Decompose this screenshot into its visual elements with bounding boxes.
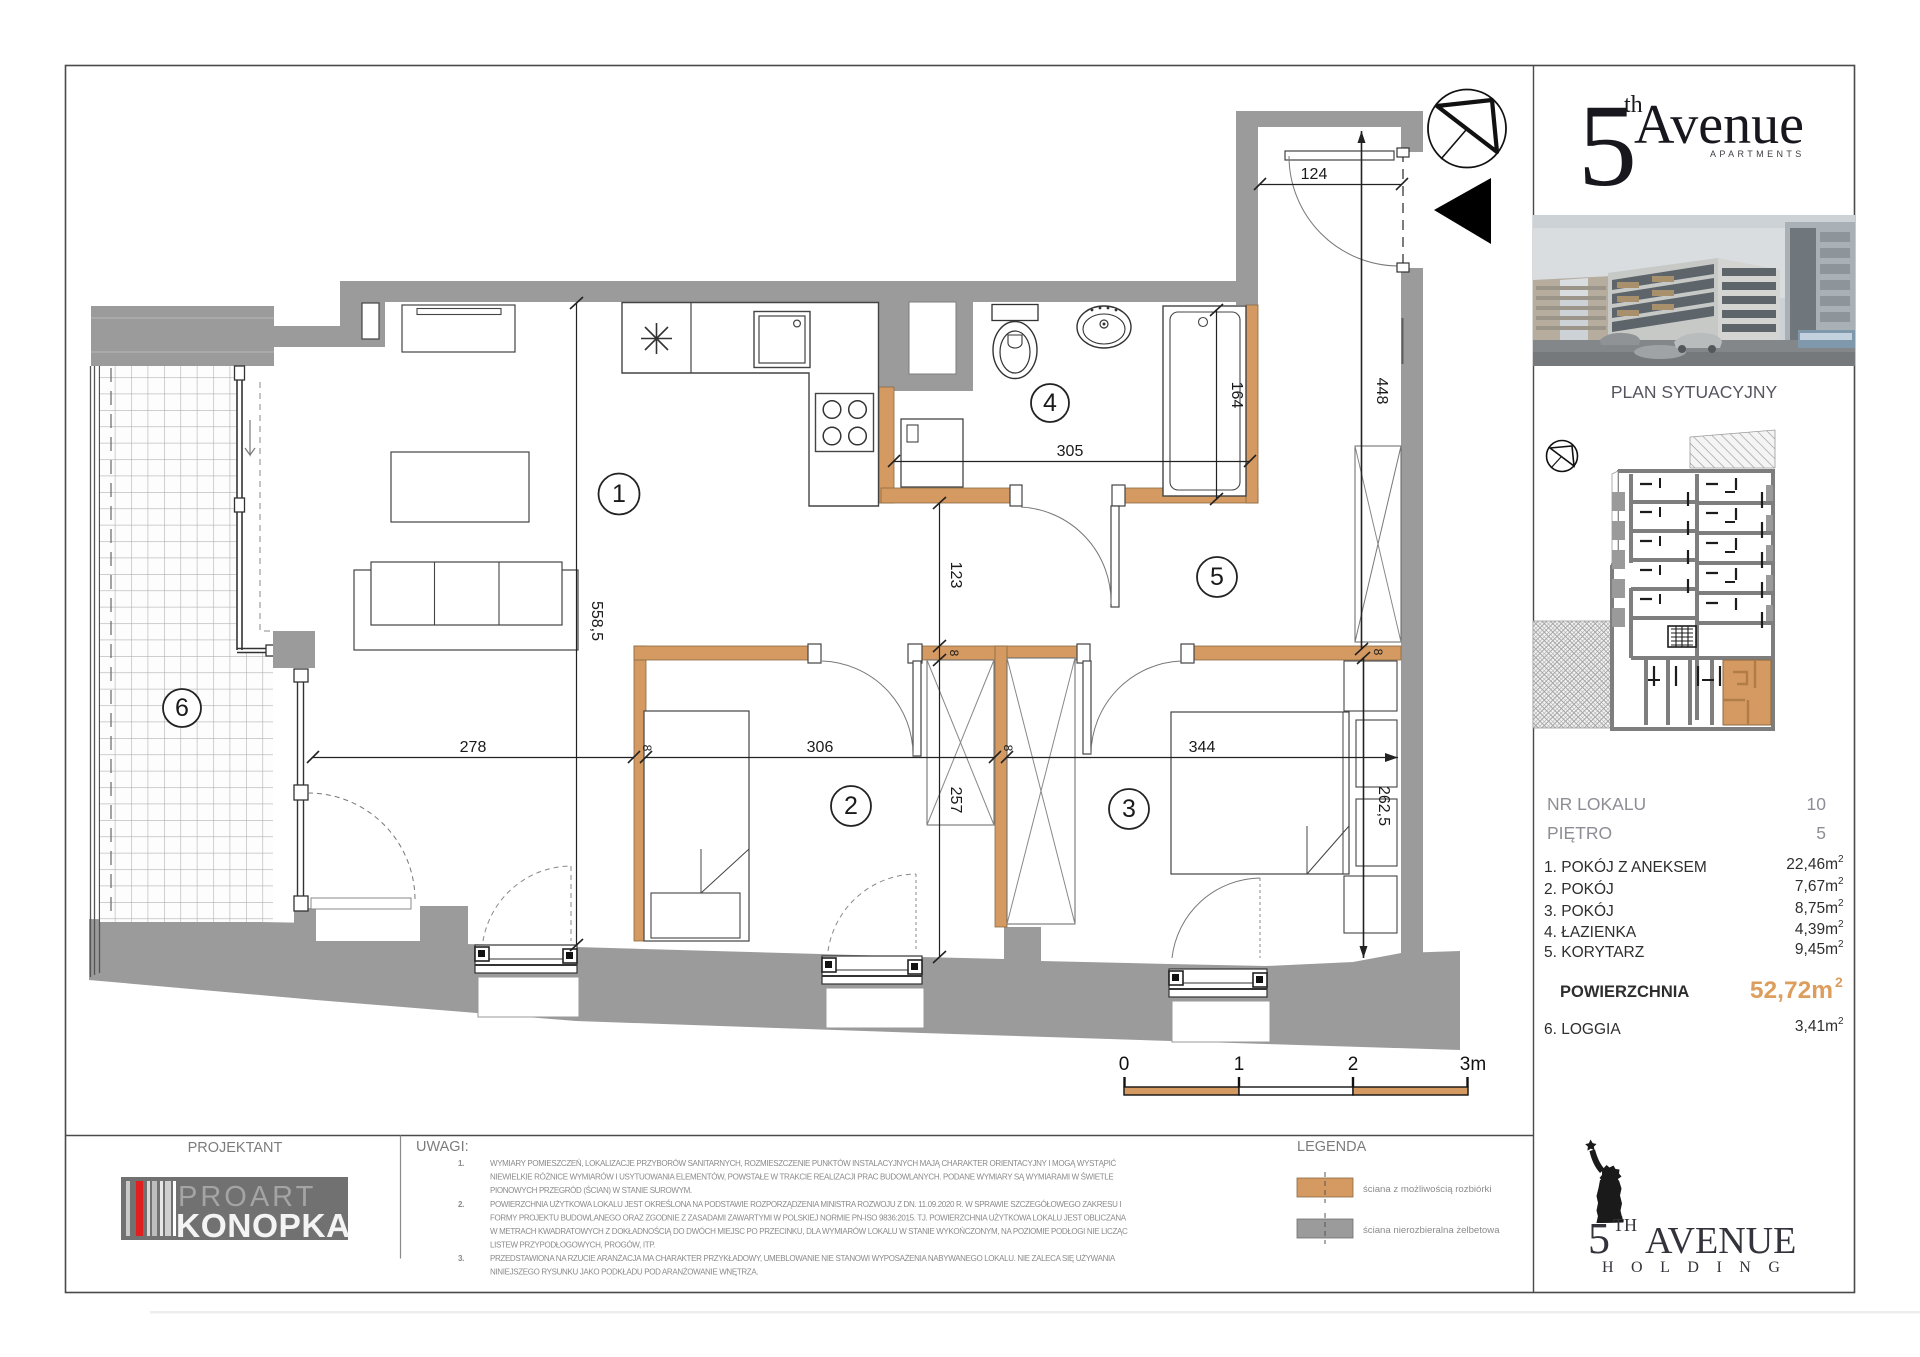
svg-text:PRZEDSTAWIONA NA RZUCIE ARANŻA: PRZEDSTAWIONA NA RZUCIE ARANŻACJA MA CHA…: [490, 1254, 1116, 1263]
svg-text:257: 257: [947, 787, 964, 814]
svg-text:FORMY PROJEKTU BUDOWLANEGO ORA: FORMY PROJEKTU BUDOWLANEGO ORAZ ZGODNIE …: [490, 1214, 1127, 1223]
svg-text:344: 344: [1189, 739, 1216, 756]
svg-text:6: 6: [175, 694, 189, 722]
svg-text:2: 2: [1838, 919, 1844, 930]
svg-text:5: 5: [1210, 563, 1224, 591]
svg-text:4. ŁAZIENKA: 4. ŁAZIENKA: [1544, 924, 1637, 941]
svg-text:4: 4: [1043, 389, 1057, 417]
svg-text:KONOPKA: KONOPKA: [176, 1208, 351, 1245]
svg-text:UWAGI:: UWAGI:: [416, 1139, 469, 1155]
svg-text:7,67m: 7,67m: [1795, 878, 1838, 895]
svg-text:2. POKÓJ: 2. POKÓJ: [1544, 881, 1614, 898]
svg-text:8: 8: [640, 745, 654, 752]
svg-text:0: 0: [1119, 1054, 1130, 1075]
svg-text:1. POKÓJ Z ANEKSEM: 1. POKÓJ Z ANEKSEM: [1544, 859, 1707, 876]
svg-text:3. POKÓJ: 3. POKÓJ: [1544, 903, 1614, 920]
svg-text:123: 123: [947, 562, 964, 589]
svg-text:PIĘTRO: PIĘTRO: [1547, 823, 1612, 843]
svg-text:1: 1: [612, 480, 626, 508]
svg-text:5: 5: [1816, 823, 1826, 843]
svg-text:278: 278: [460, 739, 487, 756]
svg-text:POWIERZCHNIA UŻYTKOWA LOKALU J: POWIERZCHNIA UŻYTKOWA LOKALU JEST OKREŚL…: [490, 1200, 1121, 1209]
svg-text:8: 8: [947, 650, 961, 657]
svg-text:2: 2: [1348, 1054, 1359, 1075]
svg-text:8: 8: [1371, 649, 1385, 656]
svg-text:Avenue: Avenue: [1634, 94, 1804, 156]
svg-text:1.: 1.: [458, 1159, 464, 1168]
svg-text:8,75m: 8,75m: [1795, 900, 1838, 917]
svg-text:3m: 3m: [1460, 1054, 1486, 1075]
svg-text:124: 124: [1301, 166, 1328, 183]
svg-text:2: 2: [1838, 854, 1844, 865]
svg-text:WYMIARY POMIESZCZEŃ, LOKALIZAC: WYMIARY POMIESZCZEŃ, LOKALIZACJE PRZYBOR…: [490, 1159, 1116, 1168]
svg-text:2: 2: [1835, 974, 1843, 990]
svg-text:PIONOWYCH PRZEGRÓD (ŚCIAN) W S: PIONOWYCH PRZEGRÓD (ŚCIAN) W STANIE SURO…: [490, 1186, 692, 1195]
svg-text:8: 8: [1001, 745, 1015, 752]
svg-text:305: 305: [1057, 443, 1084, 460]
svg-text:NINIEJSZEGO RYSUNKU JAKO PODKŁ: NINIEJSZEGO RYSUNKU JAKO PODKŁADU POD AR…: [490, 1268, 758, 1277]
svg-text:6. LOGGIA: 6. LOGGIA: [1544, 1021, 1621, 1038]
svg-text:5: 5: [1588, 1214, 1610, 1263]
svg-text:3.: 3.: [458, 1254, 464, 1263]
svg-text:PROJEKTANT: PROJEKTANT: [188, 1140, 283, 1156]
svg-text:3,41m: 3,41m: [1795, 1018, 1838, 1035]
svg-text:HOLDING: HOLDING: [1602, 1259, 1797, 1276]
svg-text:NR LOKALU: NR LOKALU: [1547, 794, 1646, 814]
svg-text:LEGENDA: LEGENDA: [1297, 1139, 1367, 1155]
svg-text:4,39m: 4,39m: [1795, 921, 1838, 938]
svg-text:W METRACH KWADRATOWYCH Z DOKŁA: W METRACH KWADRATOWYCH Z DOKŁADNOŚCIĄ DO…: [490, 1227, 1128, 1236]
svg-text:1: 1: [1234, 1054, 1245, 1075]
svg-text:10: 10: [1807, 794, 1827, 814]
svg-text:2: 2: [844, 792, 858, 820]
svg-text:2: 2: [1838, 1016, 1844, 1027]
svg-text:22,46m: 22,46m: [1786, 856, 1838, 873]
svg-text:2.: 2.: [458, 1200, 464, 1209]
svg-text:3: 3: [1122, 795, 1136, 823]
svg-text:52,72m: 52,72m: [1750, 977, 1833, 1004]
svg-text:2: 2: [1838, 898, 1844, 909]
svg-text:TH: TH: [1613, 1215, 1637, 1235]
svg-text:306: 306: [807, 739, 834, 756]
svg-text:LISTEW PRZYPODŁOGOWYCH, PROGÓW: LISTEW PRZYPODŁOGOWYCH, PROGÓW, ITP.: [490, 1241, 655, 1250]
svg-text:AVENUE: AVENUE: [1645, 1220, 1796, 1262]
svg-text:9,45m: 9,45m: [1795, 941, 1838, 958]
svg-text:APARTMENTS: APARTMENTS: [1710, 149, 1805, 159]
svg-text:PLAN SYTUACYJNY: PLAN SYTUACYJNY: [1611, 382, 1778, 402]
svg-text:5. KORYTARZ: 5. KORYTARZ: [1544, 944, 1644, 961]
svg-text:POWIERZCHNIA: POWIERZCHNIA: [1560, 983, 1689, 1001]
svg-text:2: 2: [1838, 939, 1844, 950]
svg-text:448: 448: [1373, 378, 1390, 405]
svg-text:ściana z możliwością rozbiórki: ściana z możliwością rozbiórki: [1363, 1184, 1492, 1195]
svg-text:2: 2: [1838, 876, 1844, 887]
svg-text:558,5: 558,5: [588, 601, 605, 641]
svg-text:ściana nierozbieralna żelbetow: ściana nierozbieralna żelbetowa: [1363, 1225, 1500, 1236]
svg-text:262,5: 262,5: [1375, 786, 1392, 826]
svg-text:164: 164: [1228, 382, 1245, 409]
svg-text:NIEWIELKIE RÓŻNICE WYMIARÓW I: NIEWIELKIE RÓŻNICE WYMIARÓW I USYTUOWANI…: [490, 1173, 1113, 1182]
